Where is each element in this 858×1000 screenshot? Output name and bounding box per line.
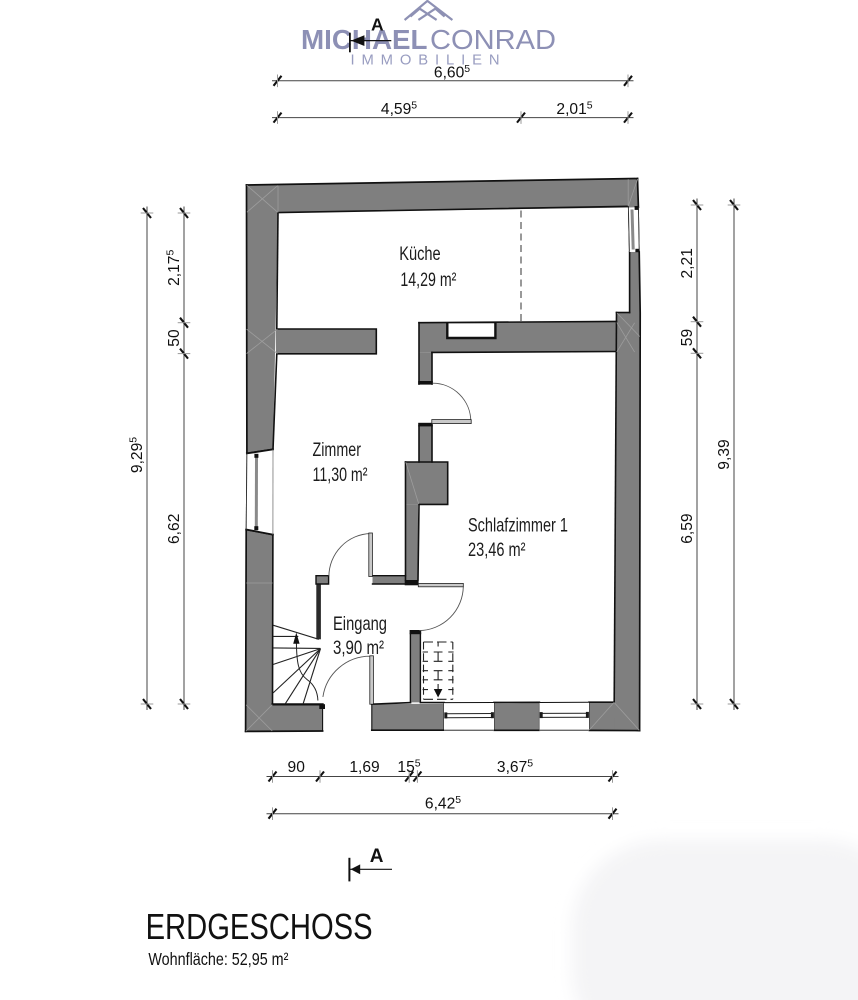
svg-text:ERDGESCHOSS: ERDGESCHOSS: [146, 906, 373, 947]
svg-text:6,62: 6,62: [166, 514, 183, 544]
svg-text:Zimmer: Zimmer: [313, 439, 362, 461]
svg-text:9,295: 9,295: [128, 437, 147, 473]
svg-text:2,015: 2,015: [556, 100, 592, 119]
svg-text:6,59: 6,59: [679, 513, 696, 543]
svg-text:1,69: 1,69: [349, 759, 379, 776]
svg-text:6,605: 6,605: [434, 63, 470, 82]
svg-text:CONRAD: CONRAD: [430, 24, 556, 55]
svg-text:Wohnfläche: 52,95 m²: Wohnfläche: 52,95 m²: [148, 949, 288, 969]
svg-text:Schlafzimmer 1: Schlafzimmer 1: [468, 514, 568, 536]
svg-text:90: 90: [288, 759, 306, 776]
svg-text:50: 50: [166, 329, 183, 347]
svg-text:Eingang: Eingang: [333, 613, 387, 635]
svg-text:59: 59: [679, 329, 696, 346]
svg-text:IMMOBILIEN: IMMOBILIEN: [351, 53, 500, 69]
svg-text:23,46 m²: 23,46 m²: [468, 539, 526, 561]
svg-text:9,39: 9,39: [716, 439, 733, 469]
svg-text:2,175: 2,175: [165, 250, 184, 286]
svg-text:2,21: 2,21: [679, 248, 696, 278]
svg-text:A: A: [370, 846, 384, 867]
svg-text:A: A: [371, 14, 384, 34]
svg-text:11,30 m²: 11,30 m²: [313, 464, 368, 486]
svg-text:14,29 m²: 14,29 m²: [400, 269, 456, 291]
svg-text:6,425: 6,425: [425, 794, 461, 813]
svg-text:Küche: Küche: [399, 243, 441, 265]
svg-text:3,675: 3,675: [497, 758, 533, 777]
svg-text:3,90 m²: 3,90 m²: [333, 637, 384, 659]
svg-text:4,595: 4,595: [381, 100, 417, 119]
